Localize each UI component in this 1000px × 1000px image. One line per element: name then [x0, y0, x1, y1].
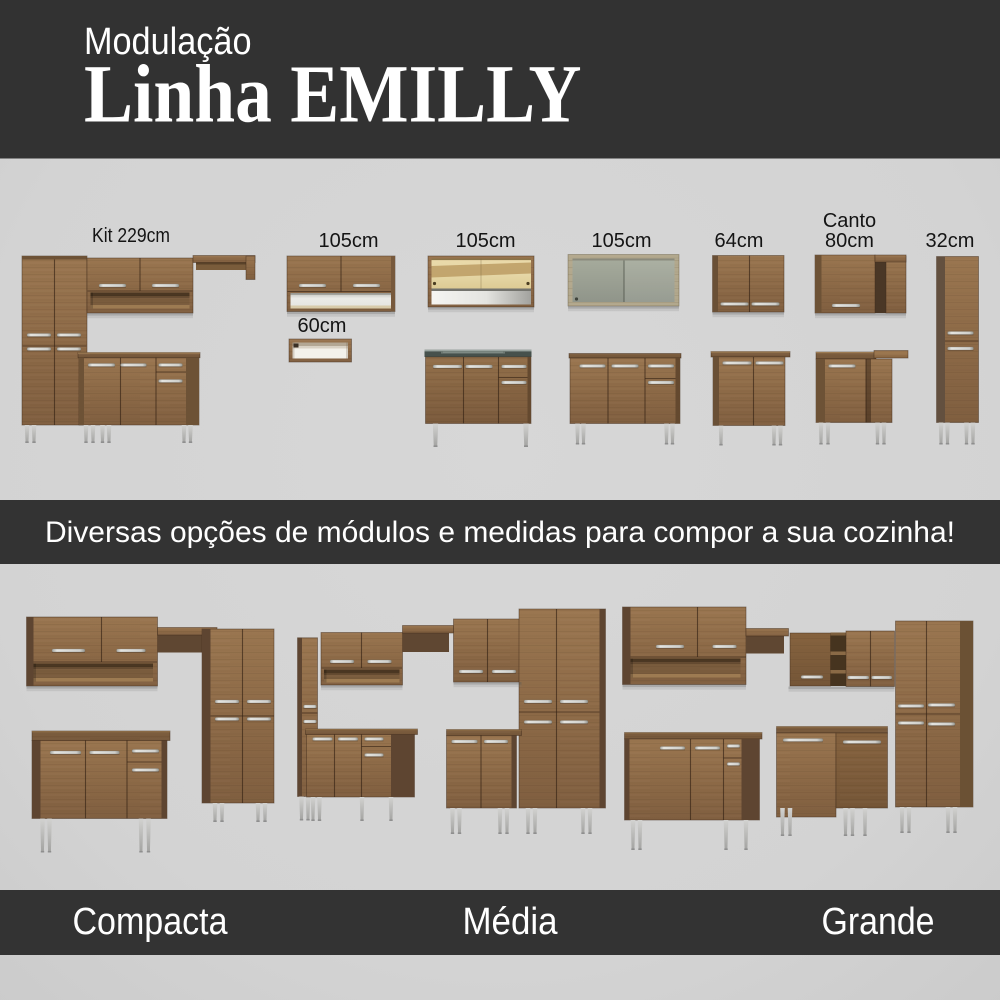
- svg-text:105cm: 105cm: [591, 230, 651, 252]
- svg-text:Grande: Grande: [822, 901, 935, 943]
- svg-text:80cm: 80cm: [825, 230, 874, 252]
- svg-text:Canto: Canto: [823, 210, 876, 232]
- svg-text:64cm: 64cm: [715, 230, 764, 252]
- svg-text:105cm: 105cm: [318, 230, 378, 252]
- svg-text:32cm: 32cm: [926, 230, 975, 252]
- svg-text:Diversas opções de módulos e m: Diversas opções de módulos e medidas par…: [45, 516, 955, 549]
- svg-text:Kit 229cm: Kit 229cm: [92, 225, 170, 247]
- svg-text:Média: Média: [463, 901, 559, 943]
- svg-text:105cm: 105cm: [455, 230, 515, 252]
- svg-text:Linha EMILLY: Linha EMILLY: [84, 48, 582, 140]
- svg-text:Compacta: Compacta: [73, 901, 229, 943]
- svg-text:60cm: 60cm: [298, 315, 347, 337]
